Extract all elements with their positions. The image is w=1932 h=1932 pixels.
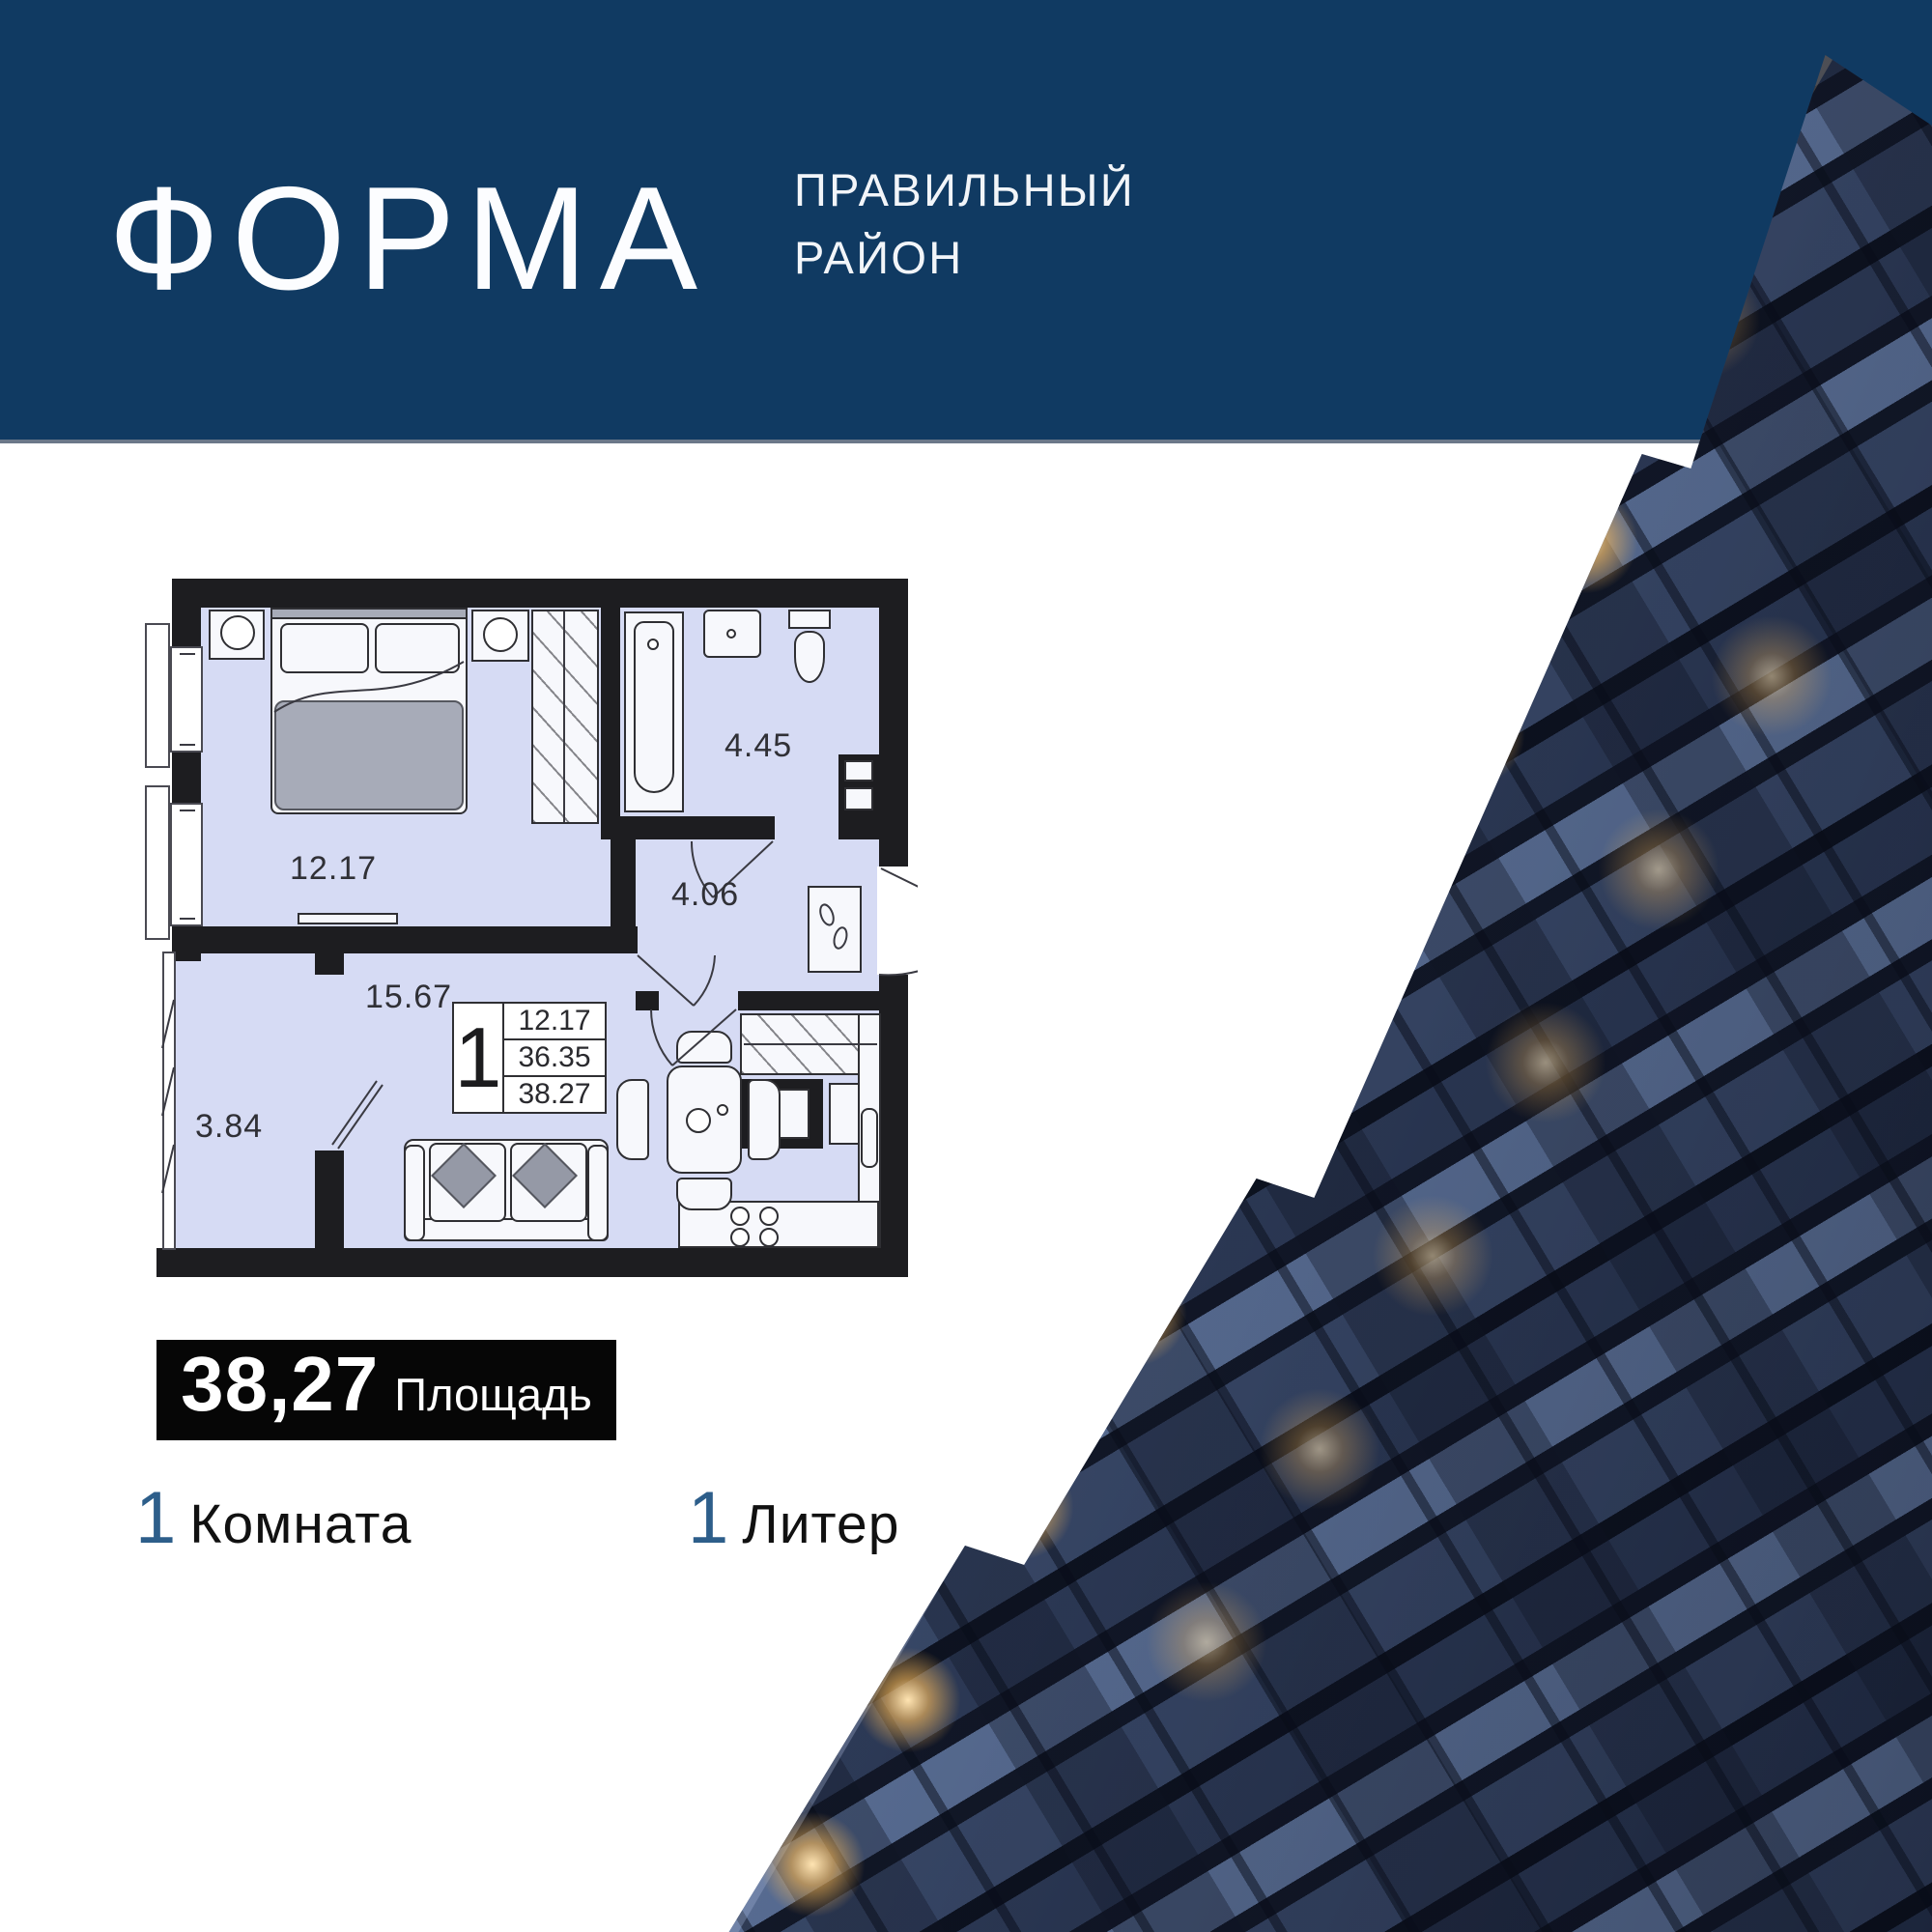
header-band: ФОРМА ПРАВИЛЬНЫЙ РАЙОН — [0, 0, 1932, 443]
room-label-bedroom: 12.17 — [290, 850, 377, 888]
facade-light — [1370, 1193, 1495, 1319]
facade-light — [1144, 1579, 1269, 1705]
brand-tagline: ПРАВИЛЬНЫЙ РАЙОН — [794, 156, 1135, 292]
facade-light — [1257, 1386, 1382, 1512]
facade-light — [968, 1454, 1074, 1560]
stamp-total-area: 38.27 — [504, 1077, 605, 1112]
stat-liter: 1 Литер — [688, 1476, 899, 1560]
area-stamp: 1 12.17 36.35 38.27 — [452, 1002, 607, 1114]
room-label-bathroom: 4.45 — [724, 727, 792, 765]
stat-liter-label: Литер — [742, 1492, 899, 1556]
total-area-badge: 38,27 Площадь — [156, 1340, 616, 1440]
floor-plan: 12.17 4.45 4.06 15.67 3.84 1 12.17 36.35… — [145, 565, 918, 1285]
facade-light — [855, 1647, 961, 1753]
total-area-value: 38,27 — [181, 1340, 379, 1429]
facade-light — [1709, 613, 1834, 739]
stat-rooms: 1 Комната — [135, 1476, 412, 1560]
plan-annotations — [145, 565, 918, 1285]
stamp-area-rows: 12.17 36.35 38.27 — [504, 1004, 605, 1112]
facade-light — [1596, 807, 1721, 932]
room-label-balcony: 3.84 — [195, 1108, 263, 1146]
room-label-living: 15.67 — [365, 979, 452, 1016]
facade-light — [1081, 1261, 1187, 1367]
tagline-line-1: ПРАВИЛЬНЫЙ — [794, 156, 1135, 224]
stat-rooms-value: 1 — [135, 1476, 176, 1560]
stamp-net-area: 36.35 — [504, 1040, 605, 1077]
facade-light — [759, 1811, 866, 1918]
stamp-living-area: 12.17 — [504, 1004, 605, 1040]
facade-light — [1419, 681, 1525, 787]
stat-liter-value: 1 — [688, 1476, 728, 1560]
room-label-hall: 4.06 — [671, 876, 739, 914]
facade-light — [1307, 874, 1413, 980]
brand-logo: ФОРМА — [108, 155, 709, 324]
flyer-root: ФОРМА ПРАВИЛЬНЫЙ РАЙОН — [0, 0, 1932, 1932]
total-area-label: Площадь — [394, 1368, 592, 1421]
facade-light — [1483, 1000, 1608, 1125]
stat-rooms-label: Комната — [189, 1492, 412, 1556]
tagline-line-2: РАЙОН — [794, 224, 1135, 292]
facade-light — [1194, 1067, 1300, 1174]
stamp-rooms-count: 1 — [454, 1004, 504, 1112]
facade-light — [1532, 488, 1638, 594]
